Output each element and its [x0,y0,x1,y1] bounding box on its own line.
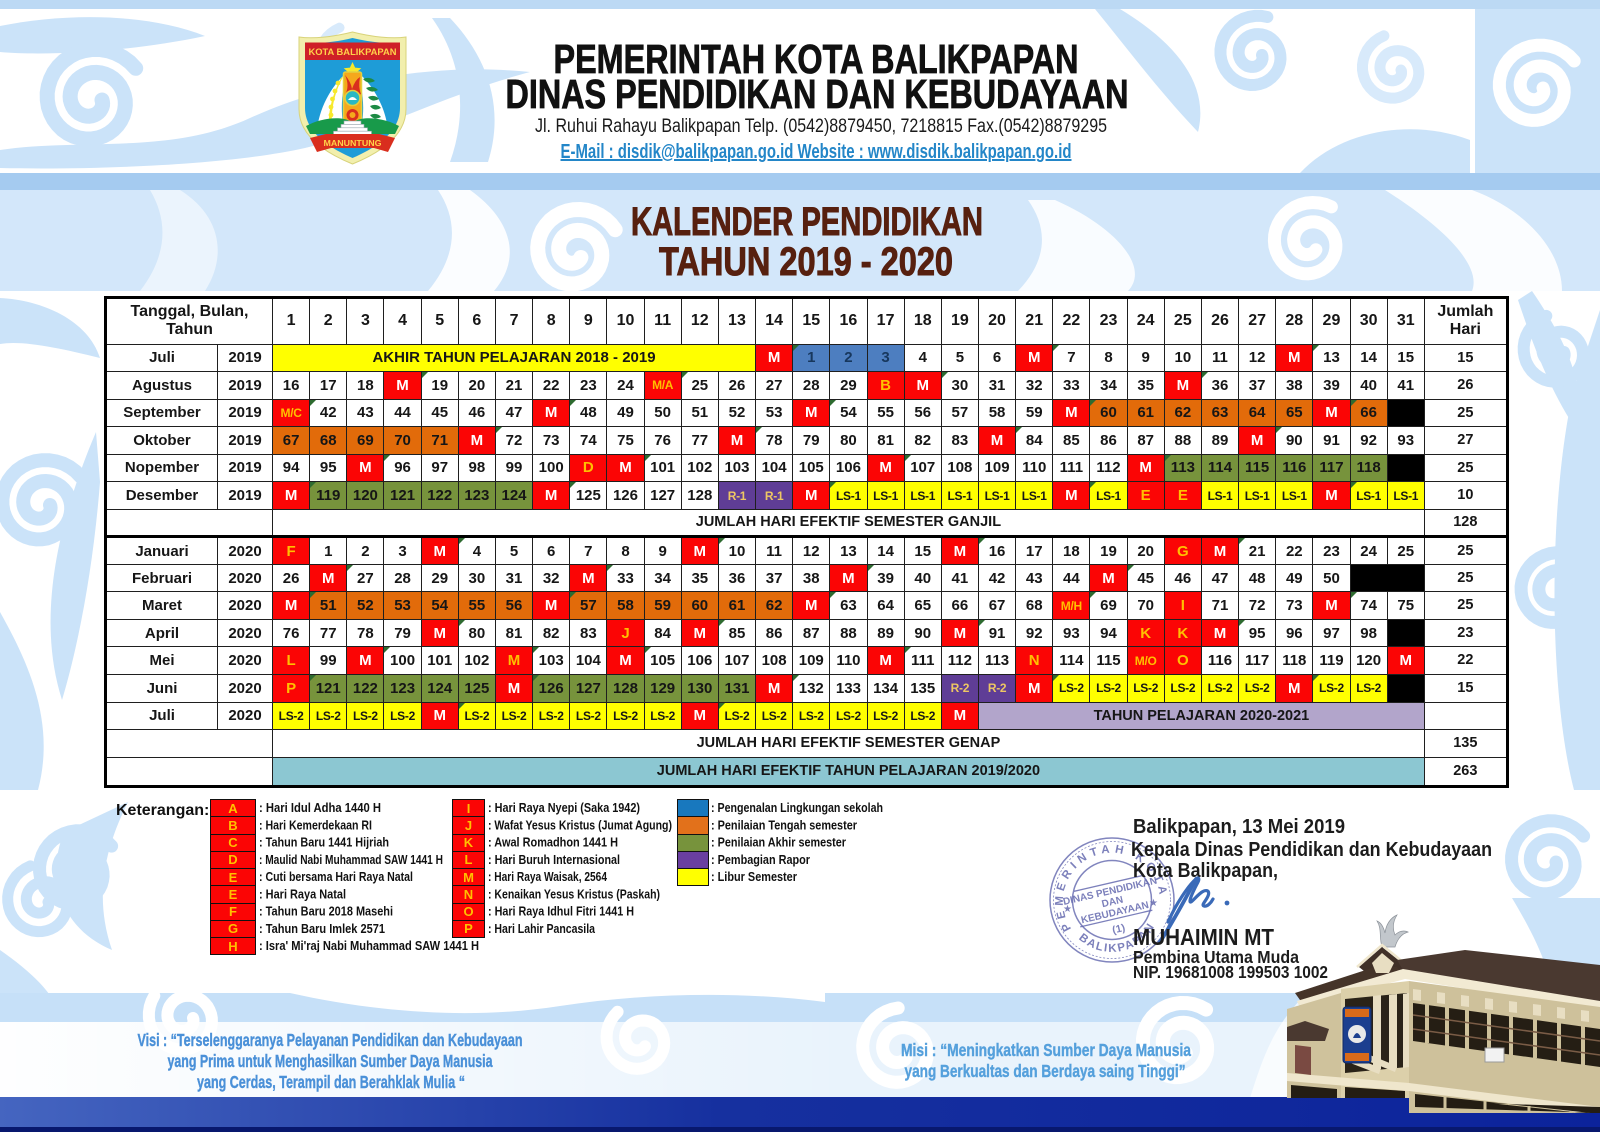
svg-text:yang Prima untuk Menghasilkan: yang Prima untuk Menghasilkan Sumber Day… [168,1051,493,1071]
svg-text:: Awal Romadhon 1441 H: : Awal Romadhon 1441 H [488,835,618,850]
svg-text:: Pembagian Rapor: : Pembagian Rapor [711,852,810,867]
svg-text:: Hari Raya Natal: : Hari Raya Natal [259,887,346,902]
svg-text:: Isra' Mi'raj Nabi Muhammad S: : Isra' Mi'raj Nabi Muhammad SAW 1441 H [259,938,479,953]
svg-text:Kepala Dinas Pendidikan dan Ke: Kepala Dinas Pendidikan dan Kebudayaan [1131,839,1492,861]
svg-text:: Tahun Baru Imlek 2571: : Tahun Baru Imlek 2571 [259,921,385,936]
svg-text:: Hari Raya Waisak, 2564: : Hari Raya Waisak, 2564 [488,869,608,884]
svg-text:yang Berkualtas dan Berdaya sa: yang Berkualtas dan Berdaya saing Tinggi… [905,1061,1186,1081]
svg-text:: Tahun Baru 1441 Hijriah: : Tahun Baru 1441 Hijriah [259,835,389,850]
svg-text:: Tahun Baru 2018 Masehi: : Tahun Baru 2018 Masehi [259,904,393,919]
svg-text:: Hari Raya Idhul Fitri 1441 H: : Hari Raya Idhul Fitri 1441 H [488,904,634,919]
svg-text:: Hari Raya Nyepi (Saka 1942): : Hari Raya Nyepi (Saka 1942) [488,800,640,815]
svg-text:: Hari Lahir Pancasila: : Hari Lahir Pancasila [488,921,596,936]
svg-text:: Hari Idul Adha 1440 H: : Hari Idul Adha 1440 H [259,800,381,815]
svg-text:yang Cerdas, Terampil dan Bera: yang Cerdas, Terampil dan Berahklak Muli… [197,1072,465,1092]
svg-text:: Pengenalan Lingkungan sekol: : Pengenalan Lingkungan sekolah [711,800,883,815]
svg-text:: Kenaikan Yesus Kristus (Pask: : Kenaikan Yesus Kristus (Paskah) [488,887,660,902]
svg-text:: Wafat Yesus Kristus (Jumat A: : Wafat Yesus Kristus (Jumat Agung) [488,818,672,833]
svg-text:: Hari Kemerdekaan RI: : Hari Kemerdekaan RI [259,818,372,833]
svg-text:: Cuti bersama Hari Raya Natal: : Cuti bersama Hari Raya Natal [259,869,413,884]
svg-text:Balikpapan, 13 Mei 2019: Balikpapan, 13 Mei 2019 [1133,816,1345,838]
svg-text:Kota Balikpapan,: Kota Balikpapan, [1133,860,1278,882]
svg-text:: Libur Semester: : Libur Semester [711,869,797,884]
svg-text:Misi : “Meningkatkan Sumber Da: Misi : “Meningkatkan Sumber Daya Manusia [901,1040,1191,1060]
svg-text:: Maulid Nabi Muhammad SAW 144: : Maulid Nabi Muhammad SAW 1441 H [259,852,443,867]
svg-text:Visi : “Terselenggaranya Pelay: Visi : “Terselenggaranya Pelayanan Pendi… [138,1030,523,1050]
svg-text:: Hari Buruh Internasional: : Hari Buruh Internasional [488,852,620,867]
svg-text:: Penilaian Akhir semester: : Penilaian Akhir semester [711,835,846,850]
svg-text:: Penilaian Tengah semester: : Penilaian Tengah semester [711,818,857,833]
